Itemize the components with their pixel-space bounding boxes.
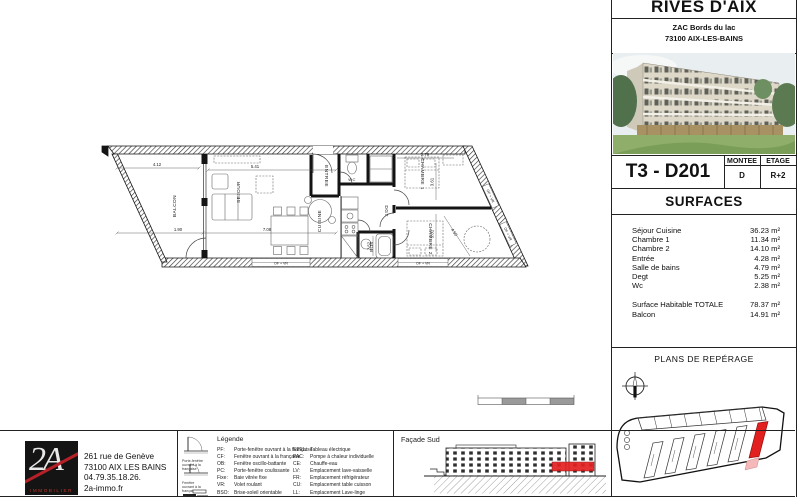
surface-row: Séjour Cuisine36.23 m² <box>632 226 780 235</box>
surface-balcon-row: Balcon14.91 m² <box>632 310 780 319</box>
armchair <box>212 174 228 189</box>
divider <box>0 496 795 497</box>
window-tag: OF + VR <box>274 261 288 265</box>
legend-entry: PAC:Pompe à chaleur individuelle <box>293 454 391 461</box>
tv-unit <box>214 156 260 163</box>
project-address: ZAC Bords du lac 73100 AIX-LES-BAINS <box>612 22 796 44</box>
svg-text:4.50: 4.50 <box>450 227 459 237</box>
bed-chambre2 <box>407 221 490 256</box>
unit-code: T3 - D201 <box>612 155 725 188</box>
floor-plan-drawing: OF + VR OF + VR OF + VR OF + VR <box>0 0 611 430</box>
toilet <box>348 162 357 174</box>
plan-sheet: { "project": { "name": "RIVES D'AIX", "a… <box>0 0 800 500</box>
surface-row: Wc2.38 m² <box>632 281 780 290</box>
building-photo <box>613 53 795 154</box>
legend-entry: CU:Emplacement table cuisson <box>293 482 391 489</box>
legend-entry: LV:Emplacement lave-vaisselle <box>293 468 391 475</box>
surfaces-table: Séjour Cuisine36.23 m² Chambre 111.34 m²… <box>632 226 780 319</box>
window-tag: OF + VR <box>416 261 430 265</box>
svg-text:4.12: 4.12 <box>153 162 162 167</box>
montee-column: MONTEE D <box>724 155 761 188</box>
svg-text:2.79: 2.79 <box>421 152 430 157</box>
surface-row: Entrée4.28 m² <box>632 254 780 263</box>
divider <box>393 430 394 496</box>
title-block-panel: RIVES D'AIX ZAC Bords du lac 73100 AIX-L… <box>611 0 797 497</box>
legend-column-2: ETEL:Tableau électrique PAC:Pompe à chal… <box>293 447 391 497</box>
scale-bar <box>478 395 574 405</box>
reperage-title: PLANS DE REPÉRAGE <box>612 354 796 364</box>
surface-row: Degt5.25 m² <box>632 272 780 281</box>
room-label-sejour: SEJOUR <box>236 181 242 203</box>
facade-elevation <box>396 438 608 496</box>
agency-website: 2a-immo.fr <box>84 484 166 495</box>
project-address-line1: ZAC Bords du lac <box>612 22 796 33</box>
coffee-table <box>256 176 273 193</box>
surface-total-row: Surface Habitable TOTALE78.37 m² <box>632 300 780 309</box>
legend-entry: ETEL:Tableau électrique <box>293 447 391 454</box>
unit-designation: T3 - D201 MONTEE D ETAGE R+2 <box>612 155 796 188</box>
sofa <box>212 194 252 220</box>
legend-entry: LL:Emplacement Lave-linge <box>293 490 391 497</box>
legend-symbol-coulissant <box>182 486 212 504</box>
agency-address-line2: 73100 AIX LES BAINS <box>84 463 166 474</box>
montee-header: MONTEE <box>724 155 760 166</box>
etage-value: R+2 <box>760 166 796 180</box>
svg-text:3.61: 3.61 <box>430 177 435 186</box>
agency-logo-text: 2A <box>29 441 61 479</box>
etage-column: ETAGE R+2 <box>760 155 796 188</box>
room-label-cuisine: CUISINE <box>317 210 323 232</box>
north-compass-icon <box>620 370 650 402</box>
room-label-balcon: BALCON <box>172 195 178 217</box>
etage-header: ETAGE <box>760 155 796 166</box>
legend-entry: CE:Chauffe-eau <box>293 461 391 468</box>
agency-address-line1: 261 rue de Genève <box>84 452 166 463</box>
svg-text:5.41: 5.41 <box>251 164 260 169</box>
project-title: RIVES D'AIX <box>612 0 796 17</box>
room-label-chambre2: CHAMBRE 2 <box>427 223 433 255</box>
agency-logo-subtext: IMMOBILIER <box>25 488 78 493</box>
agency-logo: 2A IMMOBILIER <box>25 441 78 495</box>
svg-text:1.90: 1.90 <box>174 227 183 232</box>
interior-walls <box>311 154 491 258</box>
divider <box>0 430 795 431</box>
surface-row: Salle de bains4.79 m² <box>632 263 780 272</box>
agency-phone: 04.79.35.18.26. <box>84 473 166 484</box>
kitchen-appliances <box>342 197 359 258</box>
svg-text:7.08: 7.08 <box>263 227 272 232</box>
site-location-plan <box>614 400 792 495</box>
door-swings <box>186 154 409 258</box>
room-label-entree: ENTREE <box>323 165 329 187</box>
balcony-bay-window <box>202 154 208 258</box>
room-label-sdb: SDB <box>368 241 374 252</box>
agency-address: 261 rue de Genève 73100 AIX LES BAINS 04… <box>84 452 166 494</box>
facade-highlight <box>552 462 594 471</box>
dining-table <box>271 216 308 245</box>
legend-entry: FR:Emplacement réfrigérateur <box>293 475 391 482</box>
surface-row: Chambre 111.34 m² <box>632 235 780 244</box>
project-address-line2: 73100 AIX-LES-BAINS <box>612 33 796 44</box>
room-label-wc: WC <box>348 177 355 182</box>
surfaces-title: SURFACES <box>612 194 796 209</box>
legend-title: Légende <box>217 436 243 443</box>
room-label-dgt: DGT <box>383 205 389 216</box>
room-label-chambre1: CHAMBRE 1 <box>419 158 425 190</box>
montee-value: D <box>724 166 760 180</box>
divider <box>177 430 178 496</box>
surface-row: Chambre 214.10 m² <box>632 244 780 253</box>
